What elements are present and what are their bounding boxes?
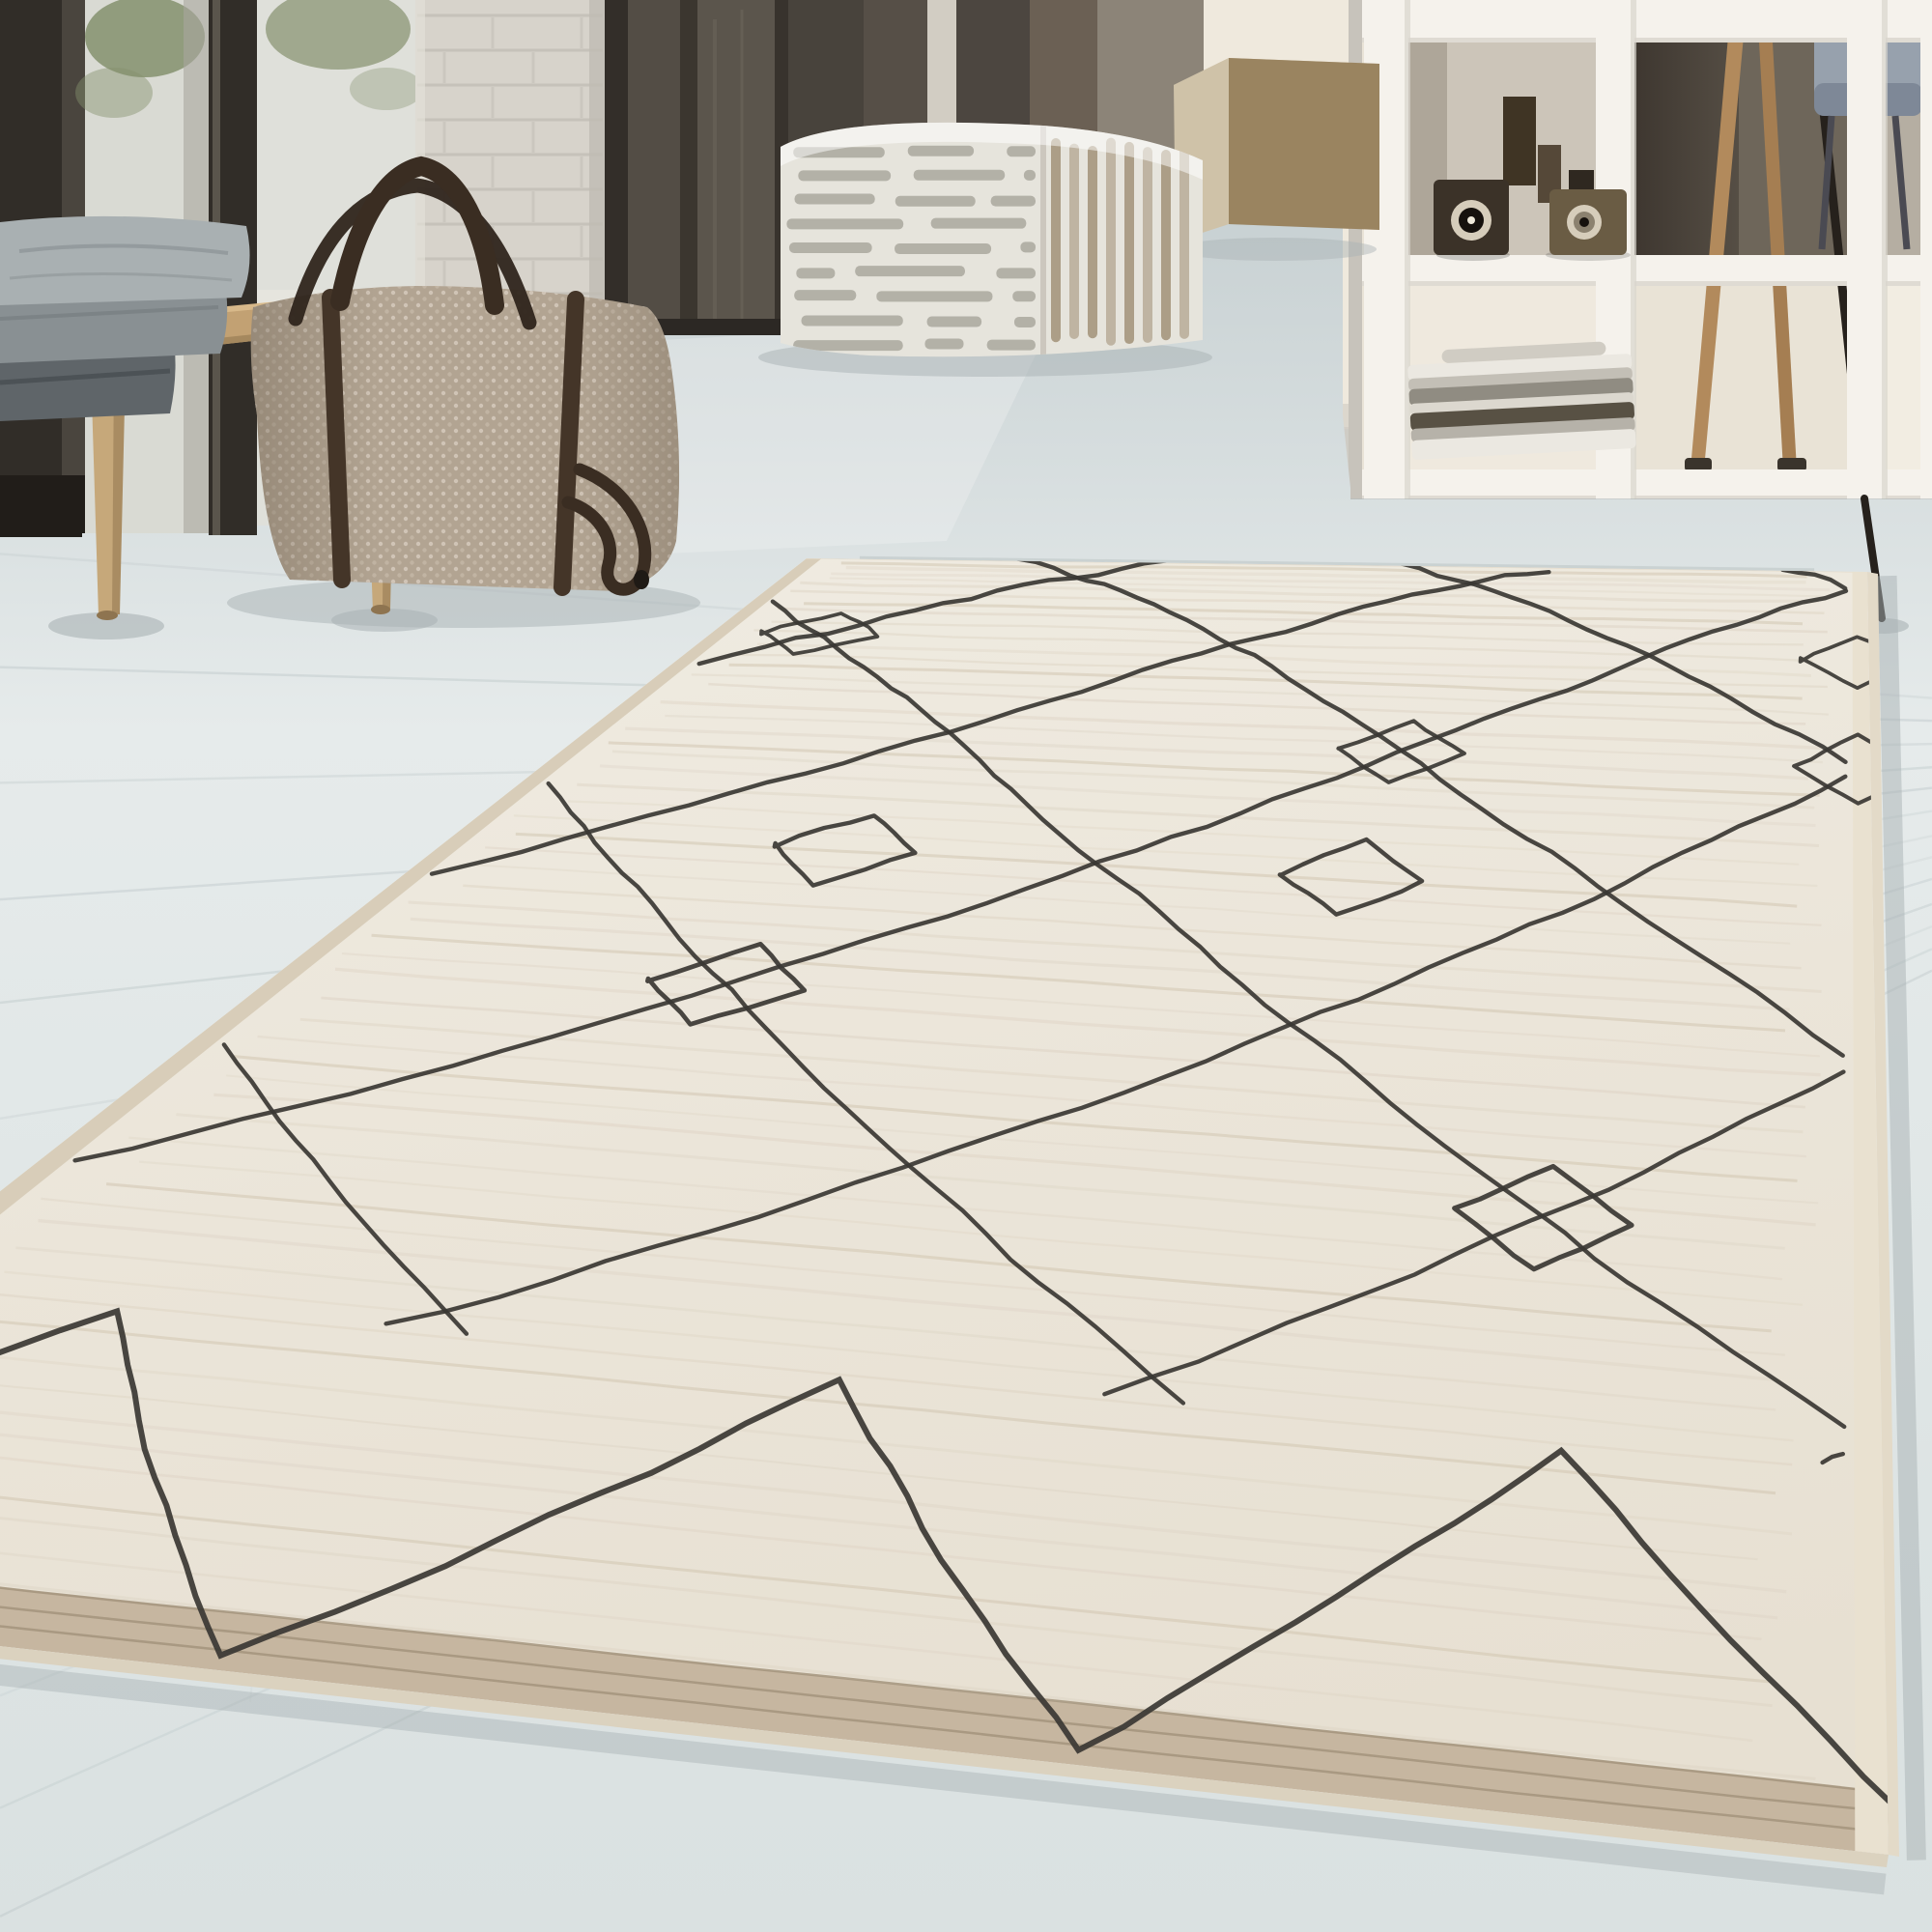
door-frame — [680, 0, 697, 338]
post-edge — [1405, 0, 1410, 500]
door-panel — [697, 0, 775, 336]
shelf-post — [1920, 0, 1932, 500]
camera-barrel — [1503, 97, 1536, 185]
shelf-bar-top-edge — [1362, 38, 1932, 43]
cubby-interior-bright — [1634, 286, 1847, 469]
cube-pouf-shade — [1229, 58, 1379, 230]
bench-foot — [371, 605, 390, 614]
bench-foot — [97, 611, 118, 620]
post-edge — [1882, 0, 1888, 500]
bag-strap-vertical — [330, 298, 342, 580]
striped-pouf — [781, 123, 1203, 357]
shelf-unit — [1350, 0, 1932, 514]
shelf-bar-top — [1362, 0, 1932, 43]
camera-lens-glint — [1467, 216, 1475, 224]
plant-blur — [350, 68, 423, 110]
plant-blur — [75, 68, 153, 118]
cushion-upper — [0, 216, 250, 305]
easel-foot — [1685, 458, 1712, 471]
scene-svg — [0, 0, 1932, 1932]
photo-canvas — [0, 0, 1932, 1932]
window-frame-bottom — [0, 475, 85, 539]
camera-lens-core — [1579, 217, 1589, 227]
shelf-post — [1847, 0, 1886, 500]
cube-pouf — [1174, 58, 1379, 241]
strap-buckle — [634, 570, 649, 589]
easel-foot — [1777, 458, 1806, 471]
shelf-bar-middle-edge — [1362, 281, 1932, 286]
door-panel — [628, 0, 680, 338]
door-frame — [605, 0, 628, 338]
cubby-interior-bright — [1886, 286, 1920, 469]
cube-pouf-shadow — [1174, 238, 1377, 261]
